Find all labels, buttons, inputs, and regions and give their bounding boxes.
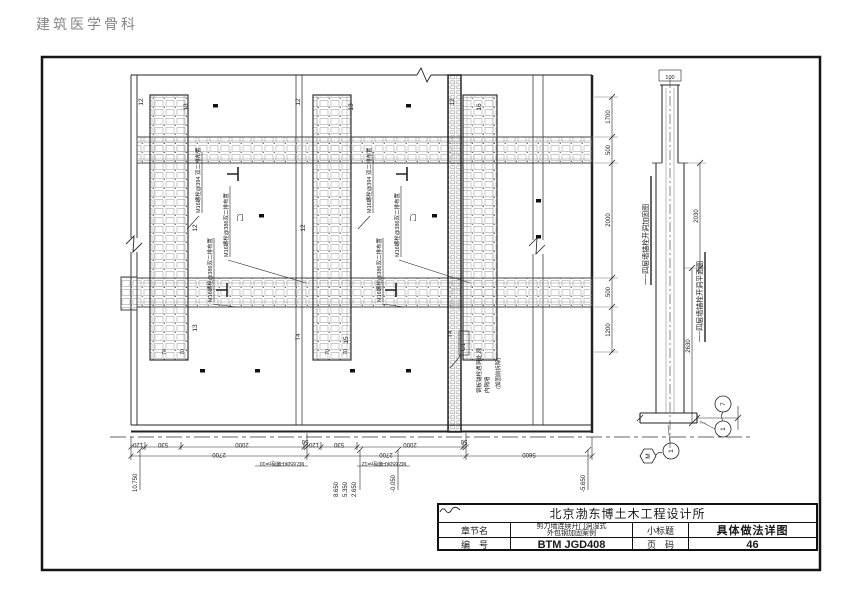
dim: 530 xyxy=(333,441,344,447)
steel-pier-2 xyxy=(313,95,351,360)
subtitle-value: 具体做法详图 xyxy=(689,523,816,538)
company-name: 北京渤东博土木工程设计所 xyxy=(549,505,705,522)
dim: 120 xyxy=(132,441,143,447)
dim: 500 xyxy=(606,286,612,297)
dim-total: 2700 xyxy=(379,451,393,457)
bolt-note-386: M16螺栓@386双二排布置 xyxy=(393,193,401,257)
bolt-note-394: M16螺栓@394 双二排布置 xyxy=(194,147,202,213)
dim-top: 100 xyxy=(665,75,674,81)
dim-total: 2700 xyxy=(212,451,226,457)
dim: 2630 xyxy=(686,339,692,353)
dim: 2000 xyxy=(235,441,249,447)
removal-note-line1: 钢板锚栓遇洞处,原 xyxy=(475,347,483,393)
number-label: 编 号 xyxy=(439,538,511,551)
break-symbol-left xyxy=(126,236,142,252)
steel-band-upper xyxy=(137,137,592,163)
dim: 1200 xyxy=(606,323,612,337)
bolt-note-386: M16螺栓@386双二排布置 xyxy=(375,238,383,302)
level-value: 5.350 xyxy=(343,481,349,497)
section-view xyxy=(594,70,741,463)
level-value: 8.650 xyxy=(334,481,340,497)
level-value: 10.750 xyxy=(133,473,139,492)
section-texts: 100 1700 500 2000 500 1200 2030 2630 一~四… xyxy=(606,75,727,459)
pier-label: 15 xyxy=(343,336,350,344)
bolt-note-394: M16螺栓@394 双二排布置 xyxy=(365,147,373,213)
steel-band-lower xyxy=(137,278,592,307)
section-cut-mark xyxy=(396,167,407,181)
anchor-note: M2.650KF螺栓n=10 xyxy=(260,460,305,467)
steel-pier-3 xyxy=(463,95,497,360)
pier-label: 12 xyxy=(192,224,199,232)
bubble-label-7: 7 xyxy=(720,402,727,406)
dim-70: 70 xyxy=(343,349,349,355)
title-block: 北京渤东博土木工程设计所 章节名 剪力墙连续开门洞湿式 外包钢加固案例 小标题 … xyxy=(437,503,818,551)
dim: 500 xyxy=(606,144,612,155)
chapter-value-line1: 剪力墙连续开门洞湿式 xyxy=(537,523,607,530)
bottom-dim-labels: 120 530 2000 50 120 530 2000 50 2700 270… xyxy=(132,438,535,467)
dim: 120 xyxy=(308,441,319,447)
left-wall-stub xyxy=(121,277,137,310)
page-label: 页 码 xyxy=(633,538,689,551)
pier-label: 16 xyxy=(476,103,483,111)
bolt-note-386: M16螺栓@386双二排布置 xyxy=(206,238,214,302)
dim: 50 xyxy=(301,438,308,444)
dim: 2000 xyxy=(403,441,417,447)
drawing-sheet: 建筑医学骨科 xyxy=(0,0,863,604)
pier-label: 13 xyxy=(192,324,199,332)
bottom-dimensions xyxy=(129,433,595,466)
center-column xyxy=(448,75,461,432)
bubble-connectors xyxy=(656,412,723,455)
steel-pier-1 xyxy=(150,95,188,360)
company-logo-icon xyxy=(439,505,461,515)
break-symbol-top xyxy=(417,68,431,82)
pier-label: 13 xyxy=(183,103,190,111)
bolt-note-386: M16螺栓@386双二排布置 xyxy=(222,193,230,257)
bubble-label-1b: 1 xyxy=(720,427,727,431)
pier-label: 13 xyxy=(348,103,355,111)
pier-label: 12 xyxy=(138,98,145,106)
dim: 530 xyxy=(157,441,168,447)
dim-70: 70 xyxy=(180,349,186,355)
pier-label: T4 xyxy=(447,330,454,338)
dim-total: 5600 xyxy=(522,451,536,457)
bubble-label-m: M xyxy=(645,453,652,458)
bubble-label-1a: 1 xyxy=(668,449,675,453)
elevation-view xyxy=(110,68,750,437)
view-title-elevation: 一~四层墙锚栓开洞加固图 xyxy=(641,204,650,285)
dim: 2030 xyxy=(694,209,700,223)
dim: 50 xyxy=(460,438,467,444)
pier-label: 12 xyxy=(300,224,307,232)
g1-tag: G1 xyxy=(461,342,467,351)
level-value: 2.650 xyxy=(352,481,358,497)
section-cut-mark xyxy=(227,167,238,181)
dim-70: 70 xyxy=(325,349,331,355)
door-label: 门 xyxy=(237,213,244,222)
number-value: BTM JGD408 xyxy=(511,538,633,551)
removal-note-line3: (加固前拆除) xyxy=(494,358,502,389)
chapter-label: 章节名 xyxy=(439,523,511,538)
pier-label: T4 xyxy=(295,333,302,341)
dim: 2000 xyxy=(606,213,612,227)
view-title-plan: 一~四层墙锚栓开洞平面图 xyxy=(695,261,704,342)
door-label: 门 xyxy=(410,213,417,222)
pier-label: 12 xyxy=(449,98,456,106)
dim: 1700 xyxy=(606,110,612,124)
subtitle-label: 小标题 xyxy=(633,523,689,538)
pier-label: 12 xyxy=(295,98,302,106)
dim-70: 70 xyxy=(162,349,168,355)
removal-note-line2: 内隔墙 xyxy=(483,376,491,393)
level-value: -0.050 xyxy=(391,474,397,492)
chapter-value-line2: 外包钢加固案例 xyxy=(547,530,596,537)
level-value: -5.650 xyxy=(581,474,587,492)
anchor-note: M2.650KF螺栓n=12 xyxy=(362,460,407,467)
level-marks: 10.750 8.650 5.350 2.650 -0.050 -5.650 xyxy=(133,447,591,497)
break-symbol-mid xyxy=(529,238,545,254)
chapter-value: 剪力墙连续开门洞湿式 外包钢加固案例 xyxy=(511,523,633,538)
page-value: 46 xyxy=(689,538,816,551)
